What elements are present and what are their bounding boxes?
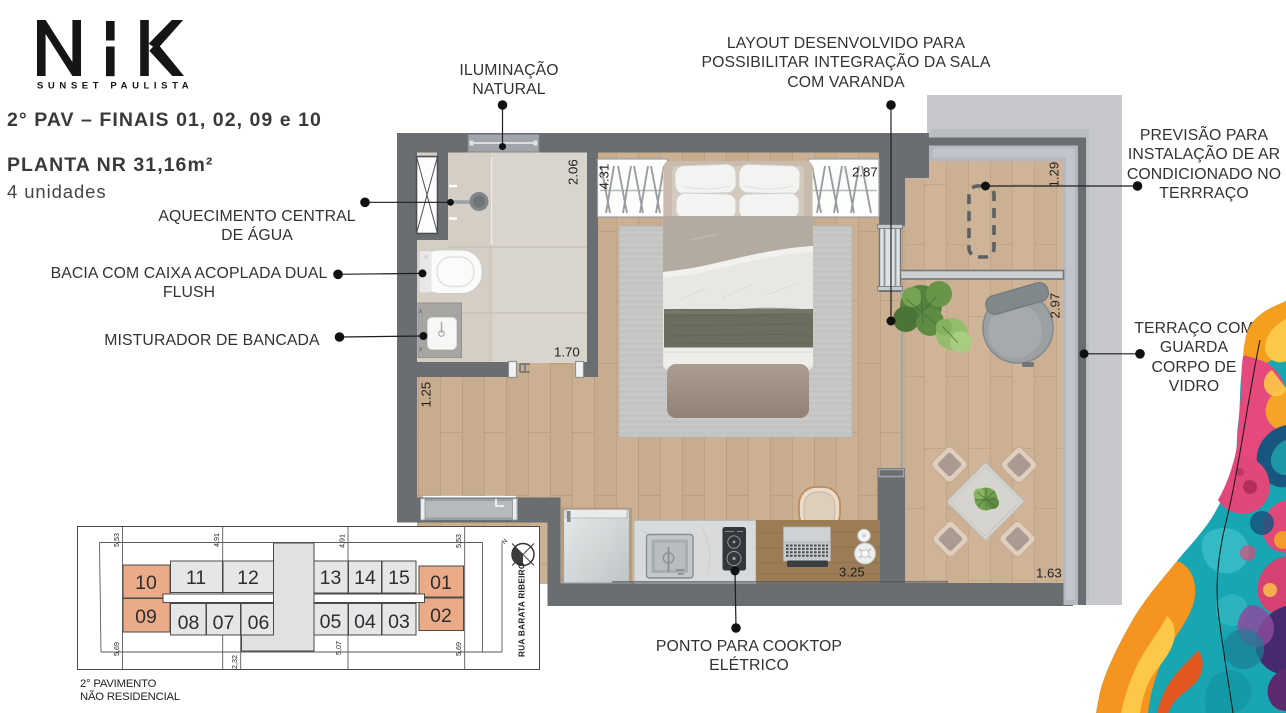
- svg-text:5,69: 5,69: [454, 642, 463, 656]
- svg-text:1.29: 1.29: [1047, 162, 1062, 188]
- svg-text:5,69: 5,69: [112, 642, 121, 656]
- svg-text:5,53: 5,53: [112, 533, 121, 547]
- svg-text:2.87: 2.87: [852, 165, 878, 180]
- svg-text:03: 03: [388, 611, 410, 633]
- svg-text:3.25: 3.25: [839, 565, 865, 580]
- svg-text:4.31: 4.31: [597, 164, 612, 190]
- svg-text:NÃO RESIDENCIAL: NÃO RESIDENCIAL: [80, 690, 180, 703]
- svg-text:11: 11: [186, 567, 206, 589]
- svg-text:2° PAVIMENTO: 2° PAVIMENTO: [80, 678, 157, 690]
- svg-text:1.70: 1.70: [554, 345, 580, 360]
- svg-text:2.06: 2.06: [566, 159, 581, 185]
- svg-text:14: 14: [354, 567, 376, 589]
- svg-text:04: 04: [354, 611, 376, 633]
- svg-text:10: 10: [135, 572, 157, 594]
- svg-text:13: 13: [320, 567, 342, 589]
- svg-text:01: 01: [430, 572, 452, 594]
- svg-text:5,53: 5,53: [454, 534, 463, 548]
- svg-text:4,91: 4,91: [338, 534, 347, 548]
- svg-text:2,32: 2,32: [230, 655, 239, 669]
- svg-text:06: 06: [248, 612, 270, 634]
- svg-text:09: 09: [135, 606, 157, 628]
- svg-text:12: 12: [237, 567, 259, 589]
- svg-text:08: 08: [178, 612, 200, 634]
- svg-text:15: 15: [388, 567, 410, 589]
- svg-text:2.97: 2.97: [1048, 293, 1063, 319]
- svg-text:4,91: 4,91: [212, 533, 221, 547]
- svg-text:07: 07: [213, 612, 235, 634]
- svg-text:05: 05: [320, 611, 342, 633]
- svg-text:RUA BARATA RIBEIRO: RUA BARATA RIBEIRO: [518, 562, 527, 657]
- svg-text:5,07: 5,07: [334, 641, 343, 655]
- svg-text:1.63: 1.63: [1036, 566, 1062, 581]
- svg-text:02: 02: [430, 605, 452, 627]
- svg-text:1.25: 1.25: [419, 382, 434, 408]
